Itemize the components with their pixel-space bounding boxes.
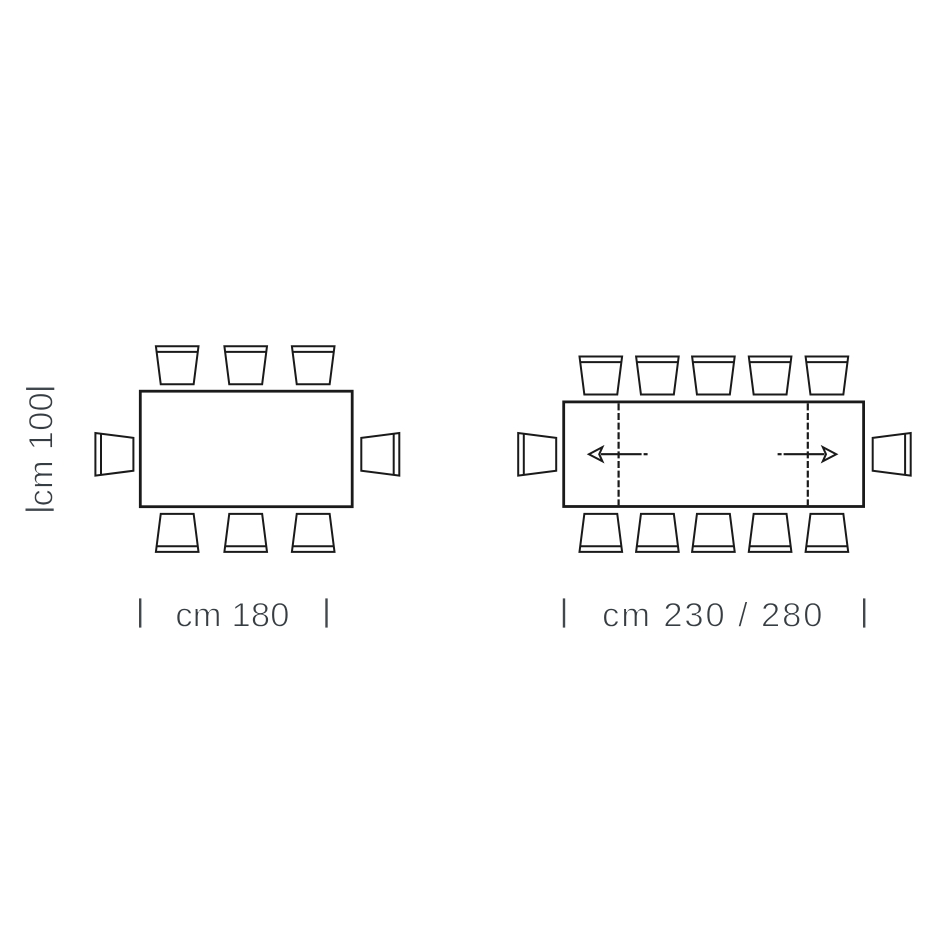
svg-text:cm 100: cm 100 (23, 392, 61, 506)
svg-text:cm 180: cm 180 (175, 597, 289, 635)
svg-text:cm 230 / 280: cm 230 / 280 (602, 597, 824, 635)
